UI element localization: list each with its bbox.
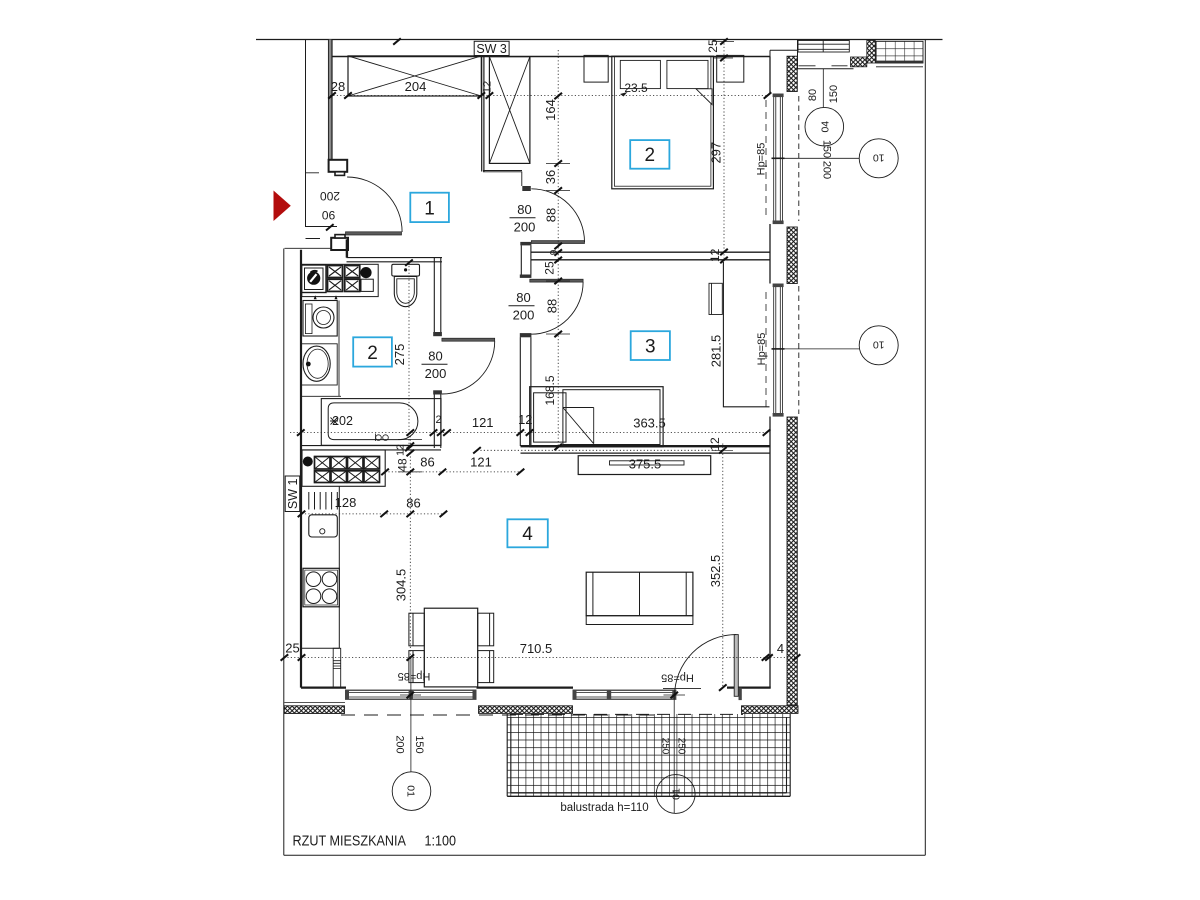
svg-text:88: 88 [545,299,560,313]
svg-text:balustrada h=110: balustrada h=110 [560,802,648,814]
svg-text:297: 297 [709,142,724,164]
svg-text:01: 01 [671,788,683,800]
svg-text:12: 12 [708,248,722,262]
svg-text:80: 80 [428,349,442,364]
svg-text:86: 86 [420,455,434,470]
svg-text:281.5: 281.5 [709,335,724,368]
svg-text:48: 48 [396,458,410,472]
svg-text:363.5: 363.5 [633,416,666,431]
svg-text:12: 12 [518,412,532,427]
svg-text:12: 12 [482,81,494,93]
svg-text:88: 88 [544,208,559,222]
svg-text:90: 90 [322,208,336,222]
svg-text:2: 2 [645,145,656,166]
svg-text:25: 25 [285,641,299,656]
svg-text:250: 250 [676,738,687,755]
svg-text:121: 121 [470,455,492,470]
svg-text:200: 200 [320,189,340,203]
svg-text:200: 200 [513,308,535,323]
svg-text:Hp=85: Hp=85 [756,143,768,176]
svg-text:23.5: 23.5 [624,81,648,95]
svg-text:RZUT MIESZKANIA: RZUT MIESZKANIA [293,833,407,850]
svg-text:Hp=85: Hp=85 [661,672,694,684]
svg-text:01: 01 [405,785,417,797]
svg-text:10: 10 [873,338,885,350]
svg-text:1: 1 [424,198,435,219]
svg-text:04: 04 [819,121,831,133]
svg-text:710.5: 710.5 [520,641,553,656]
svg-text:200: 200 [425,366,447,381]
svg-text:SW 3: SW 3 [476,42,507,56]
svg-text:304.5: 304.5 [394,569,409,602]
svg-text:1:100: 1:100 [425,833,457,850]
svg-text:204: 204 [405,79,427,94]
svg-text:2: 2 [435,414,441,426]
svg-text:352.5: 352.5 [708,555,723,588]
svg-text:121: 121 [472,415,494,430]
svg-text:168.5: 168.5 [543,375,557,405]
svg-text:164: 164 [543,99,558,121]
svg-text:128: 128 [335,495,357,510]
svg-text:150: 150 [828,85,840,103]
svg-text:200: 200 [821,161,833,179]
svg-text:9: 9 [549,249,560,255]
svg-text:86: 86 [406,496,420,511]
svg-text:12: 12 [395,444,407,456]
svg-text:3: 3 [645,337,656,358]
svg-text:80: 80 [807,89,819,101]
svg-text:10: 10 [873,151,885,163]
svg-text:36: 36 [543,170,558,184]
svg-text:2: 2 [367,343,378,364]
svg-text:80: 80 [517,202,531,217]
svg-text:4: 4 [777,641,784,656]
svg-text:12: 12 [708,437,722,451]
svg-text:375.5: 375.5 [629,457,662,472]
svg-text:25: 25 [706,39,720,53]
svg-text:150: 150 [821,140,833,158]
svg-text:Hp=85: Hp=85 [756,333,768,366]
svg-text:80: 80 [516,290,530,305]
svg-text:4: 4 [522,524,533,545]
svg-text:28: 28 [331,79,345,94]
svg-text:150: 150 [413,735,425,753]
svg-text:250: 250 [660,738,671,755]
svg-text:275: 275 [392,344,407,366]
svg-text:SW 1: SW 1 [286,478,300,509]
svg-text:200: 200 [514,220,536,235]
svg-text:25: 25 [543,261,557,275]
svg-text:Hp=85: Hp=85 [398,670,431,682]
svg-text:200: 200 [394,735,406,753]
